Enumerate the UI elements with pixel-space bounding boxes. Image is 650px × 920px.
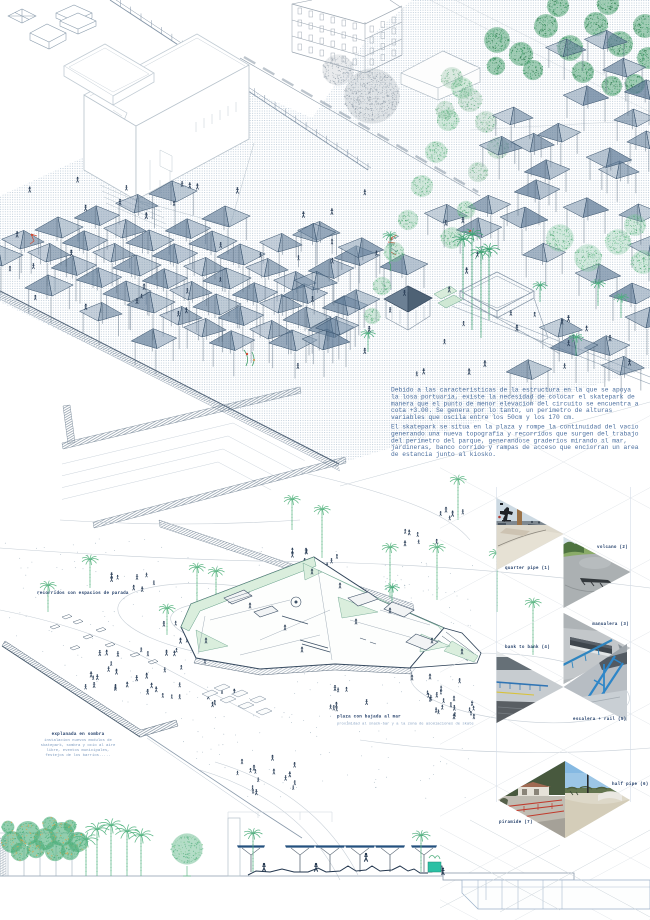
svg-text:festejos de los barrios.....: festejos de los barrios..... <box>45 753 110 758</box>
svg-text:explanada en sombra: explanada en sombra <box>52 732 105 737</box>
svg-text:recorridos con espacios de par: recorridos con espacios de parada <box>37 591 129 596</box>
svg-text:plaza con bajada al mar: plaza con bajada al mar <box>337 715 401 720</box>
svg-text:piramide (7): piramide (7) <box>499 820 533 825</box>
svg-text:libre, eventos municipales,: libre, eventos municipales, <box>46 748 109 753</box>
svg-text:bank to bank (4): bank to bank (4) <box>505 645 550 650</box>
svg-text:variables que oscila entre los: variables que oscila entre los 50cm y lo… <box>391 414 575 421</box>
svg-text:instalacion nuevos modulos de: instalacion nuevos modulos de <box>44 738 112 743</box>
svg-text:proximidad al snack-bar y a la: proximidad al snack-bar y a la zona de a… <box>337 722 474 727</box>
svg-text:volcano (2): volcano (2) <box>597 545 628 550</box>
svg-text:quarter pipe (1): quarter pipe (1) <box>505 566 550 571</box>
svg-text:manualera (3): manualera (3) <box>592 622 629 627</box>
svg-text:half pipe (6): half pipe (6) <box>612 782 649 787</box>
svg-text:de estancia junto al kiosko.: de estancia junto al kiosko. <box>391 451 496 458</box>
svg-text:skatepark, sombra y ocio al ai: skatepark, sombra y ocio al aire <box>41 743 116 748</box>
svg-text:escalera + rail (5): escalera + rail (5) <box>573 717 626 722</box>
